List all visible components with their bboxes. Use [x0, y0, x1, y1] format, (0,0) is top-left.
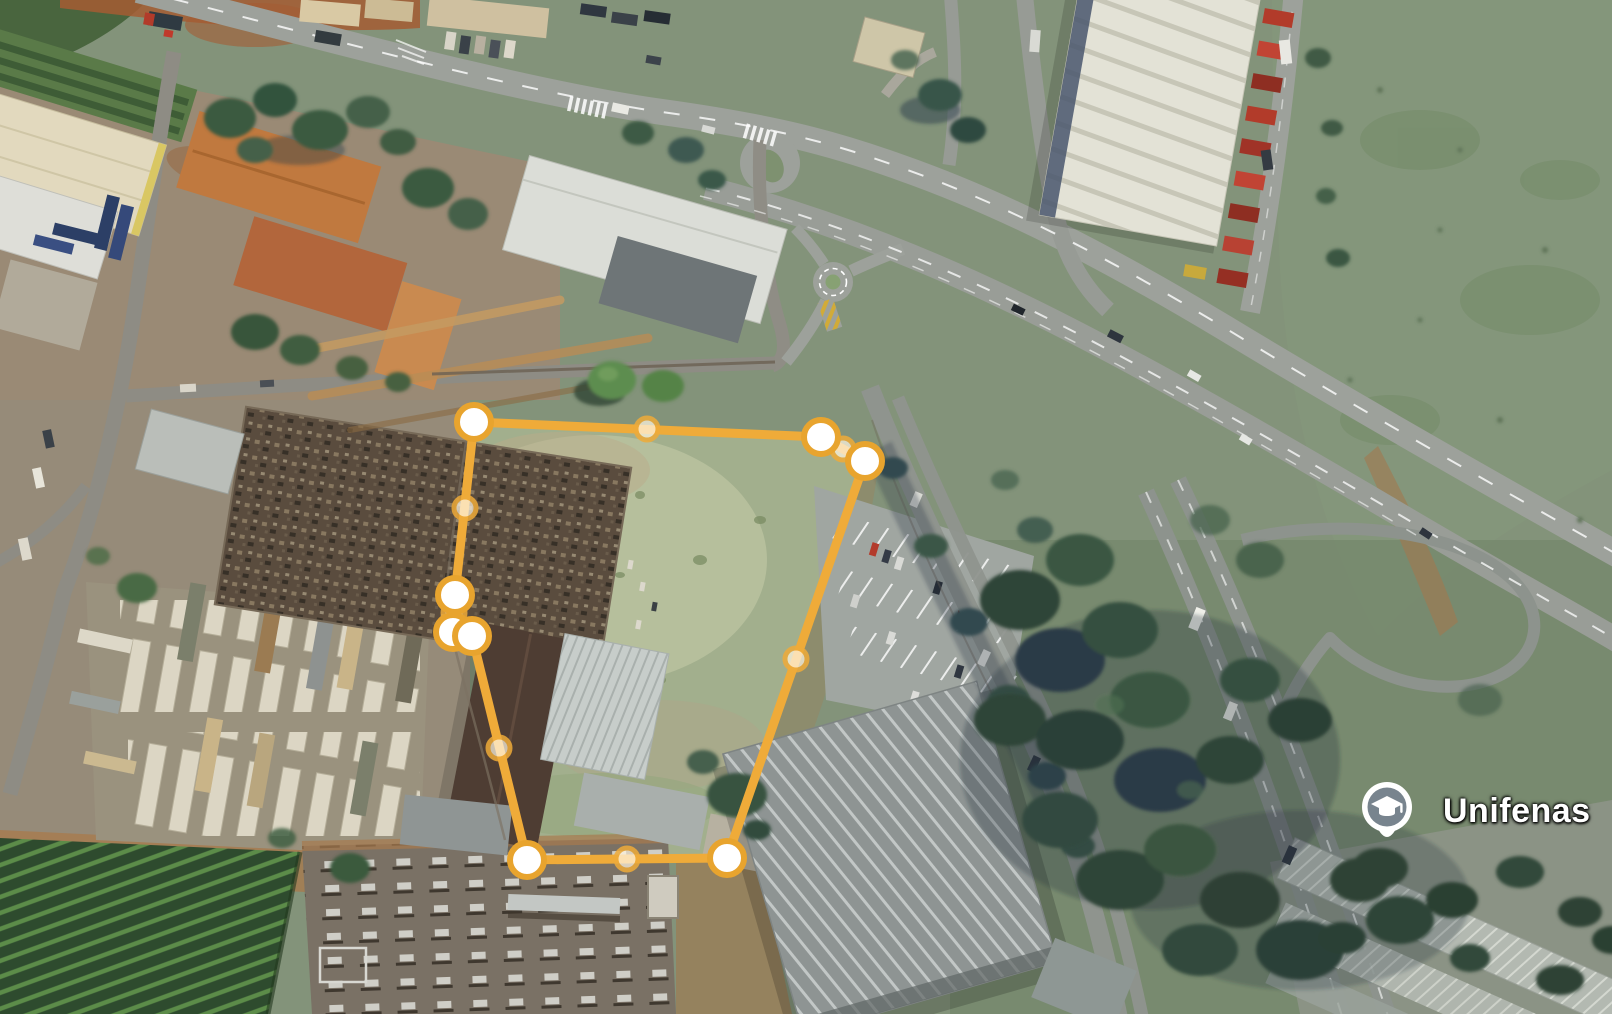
- polygon-midpoint-handle[interactable]: [616, 848, 638, 870]
- polygon-midpoint-handle[interactable]: [454, 497, 476, 519]
- polygon-vertex-handle[interactable]: [457, 405, 491, 439]
- polygon-midpoint-handle[interactable]: [488, 737, 510, 759]
- polygon-vertex-handle[interactable]: [848, 444, 882, 478]
- polygon-vertex-handle[interactable]: [510, 843, 544, 877]
- polygon-midpoint-handle[interactable]: [785, 648, 807, 670]
- satellite-map-canvas[interactable]: Unifenas: [0, 0, 1612, 1014]
- crop-field: [0, 838, 300, 1014]
- polygon-vertex-handle[interactable]: [455, 619, 489, 653]
- polygon-vertex-handle[interactable]: [438, 578, 472, 612]
- polygon-vertex-handle[interactable]: [710, 841, 744, 875]
- place-label[interactable]: Unifenas: [1443, 792, 1591, 831]
- place-marker-unifenas[interactable]: [1357, 780, 1417, 856]
- satellite-imagery: [0, 0, 1612, 1014]
- polygon-midpoint-handle[interactable]: [636, 418, 658, 440]
- education-pin-icon[interactable]: [1357, 780, 1417, 856]
- polygon-vertex-handle[interactable]: [804, 420, 838, 454]
